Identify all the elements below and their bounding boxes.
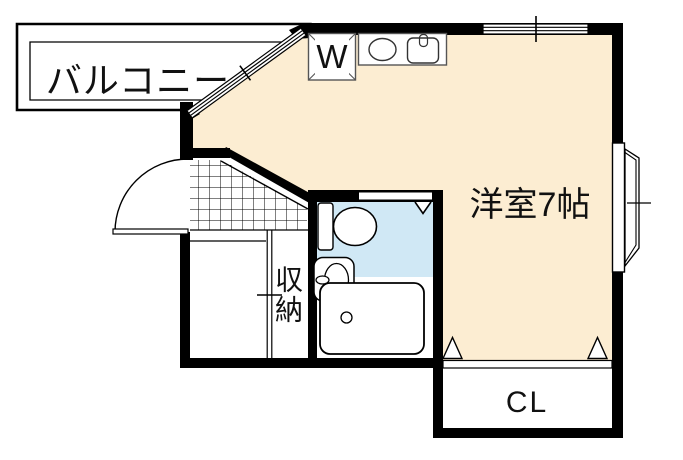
bathtub-icon — [320, 283, 424, 354]
floor-plan: バルコニー W 洋室7帖 収納 CL — [0, 0, 683, 460]
stove-burner-icon — [369, 39, 396, 61]
entry-door-icon — [113, 159, 188, 234]
washer-label: W — [315, 39, 349, 75]
balcony-label: バルコニー — [42, 52, 234, 104]
kitchen-faucet-icon — [420, 35, 428, 47]
entrance-step — [190, 230, 308, 241]
storage-label: 収納 — [270, 252, 304, 338]
closet-label: CL — [457, 386, 597, 420]
kitchen-counter-icon — [359, 34, 447, 66]
main-room-label: 洋室7帖 — [430, 177, 630, 226]
